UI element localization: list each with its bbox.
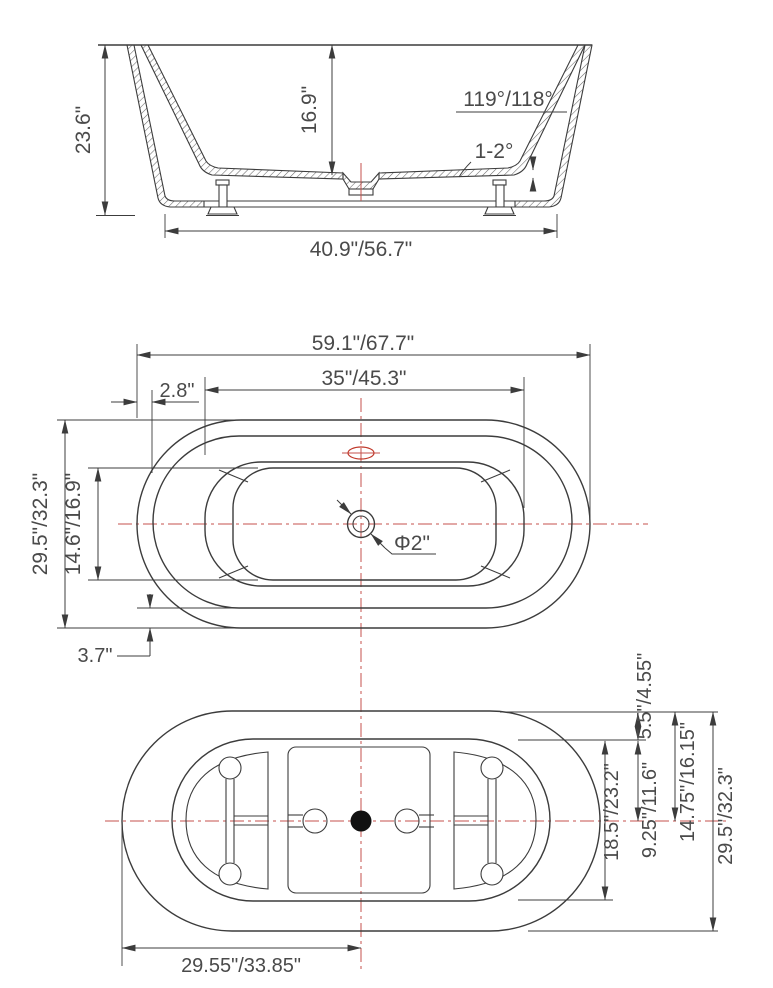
dim-base-end-offset-label: 5.5"/4.55" — [634, 653, 656, 739]
bottom-view: 5.5"/4.55" 18.5"/23.2" 9.25"/11.6" 14.75… — [105, 653, 737, 977]
drawing-canvas: 23.6" 16.9" 119°/118° 1-2° 40.9"/56.7" — [0, 0, 773, 988]
bottom-drain-hole — [351, 811, 372, 832]
dim-base-length-label: 18.5"/23.2" — [601, 763, 623, 861]
drain-diameter-label: Φ2" — [394, 532, 430, 555]
dim-half-length-label: 29.55"/33.85" — [181, 955, 301, 977]
tub-left-skirt-wall — [127, 45, 204, 207]
dim-rim-side-width-label: 3.7" — [78, 645, 113, 667]
dim-basin-length-label: 35"/45.3" — [322, 367, 407, 390]
drain-arrow-se — [371, 534, 385, 548]
bathtub-dimension-drawing: 23.6" 16.9" 119°/118° 1-2° 40.9"/56.7" — [0, 0, 773, 988]
left-foot — [206, 180, 239, 216]
dim-overall-width-label: 29.5"/32.3" — [29, 473, 52, 576]
foot-pad — [219, 863, 241, 885]
right-foot — [483, 180, 516, 216]
wall-angle-label: 119°/118° — [463, 88, 553, 111]
dim-basin-width-label: 14.6"/16.9" — [62, 473, 85, 576]
dim-top-to-center-label: 14.75"/16.15" — [677, 722, 699, 842]
floor-slope-label: 1-2° — [475, 140, 514, 163]
foot-pad — [481, 757, 503, 779]
tub-right-skirt-wall — [515, 45, 592, 207]
dim-overall-length-label: 59.1"/67.7" — [312, 332, 415, 355]
foot-pad — [481, 863, 503, 885]
side-elevation-view: 23.6" 16.9" 119°/118° 1-2° 40.9"/56.7" — [72, 45, 592, 261]
dim-inner-depth-label: 16.9" — [298, 86, 321, 134]
dim-base-length-label: 40.9"/56.7" — [310, 238, 413, 261]
dim-bottom-overall-width-label: 29.5"/32.3" — [715, 767, 737, 865]
drain-arrow-nw — [337, 500, 351, 514]
dim-overall-height-label: 23.6" — [72, 106, 95, 154]
foot-pad — [219, 757, 241, 779]
dim-rim-end-width-label: 2.8" — [160, 380, 195, 402]
dim-base-half-length-label: 9.25"/11.6" — [639, 762, 661, 858]
